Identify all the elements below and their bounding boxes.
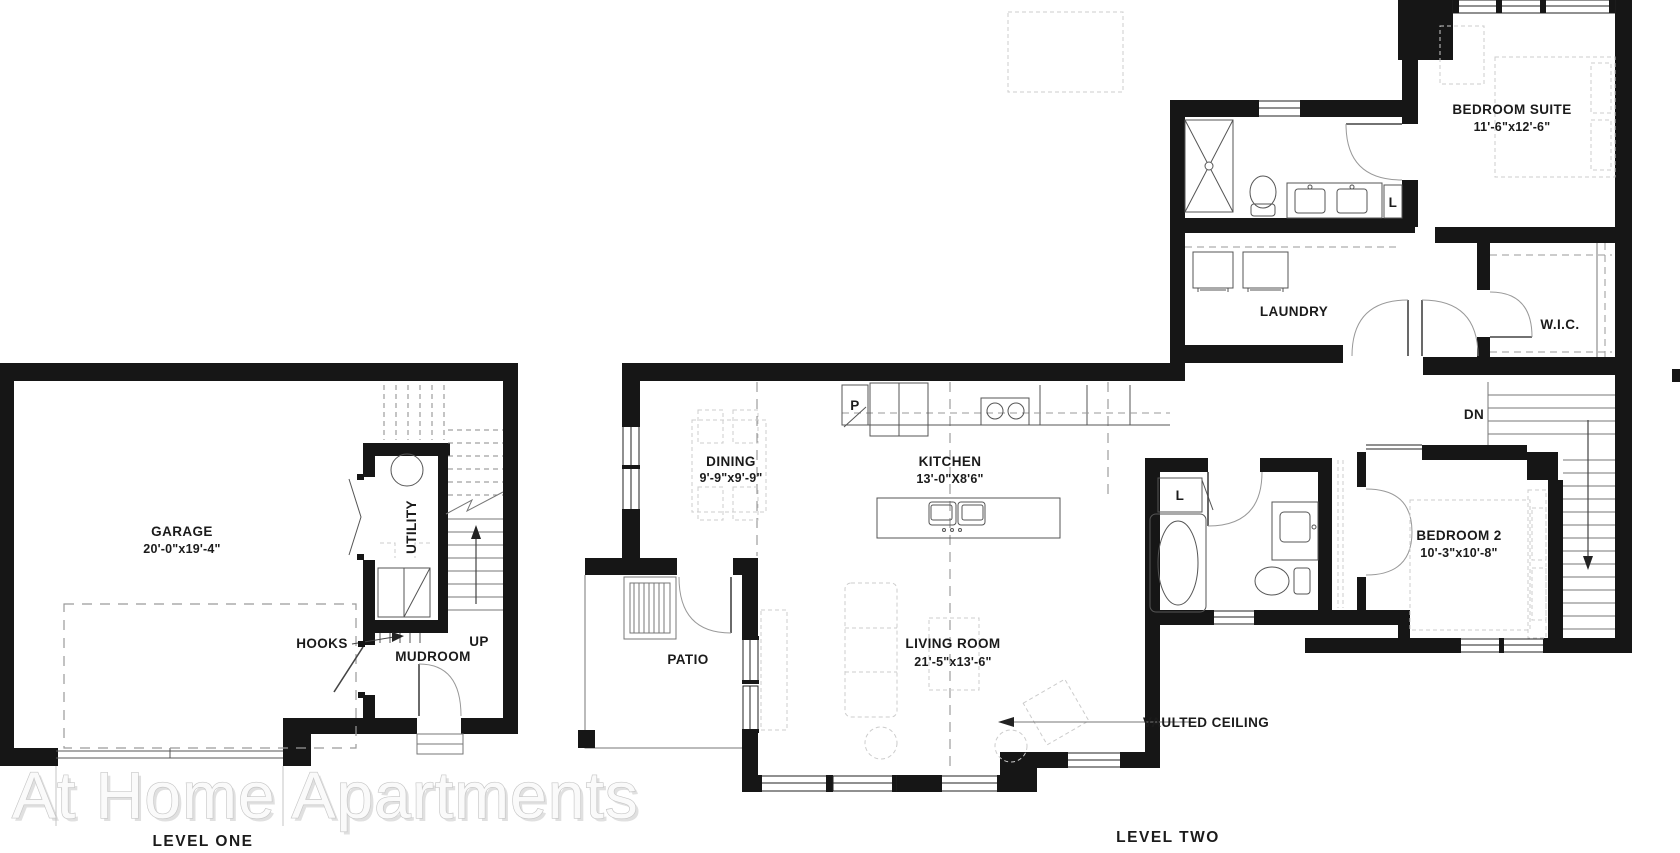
- bedroom2-double-doors: [1366, 489, 1412, 575]
- pantry-label: P: [850, 398, 859, 413]
- level-one-plan: GARAGE 20'-0"x19'-4" UTILITY HOOKS MUDRO…: [0, 363, 518, 826]
- living-south-window: [1064, 752, 1124, 768]
- shower: [1185, 120, 1233, 212]
- utility-bifold-door: [349, 479, 361, 555]
- garage-entry-door: [334, 647, 363, 692]
- patio-door: [679, 577, 731, 633]
- bedroom2-window: [1456, 638, 1548, 653]
- patio-corner-post: [578, 730, 595, 748]
- water-heater: [391, 454, 423, 486]
- level-two-title: LEVEL TWO: [1116, 829, 1220, 846]
- hall-door-left: [1352, 300, 1408, 356]
- bedroom2-label: BEDROOM 2: [1416, 528, 1501, 543]
- washer: [1193, 252, 1233, 292]
- bath2-fixtures: [1150, 460, 1343, 612]
- vanity-bath2: [1272, 502, 1318, 560]
- bedroom-suite-label: BEDROOM SUITE: [1452, 102, 1571, 117]
- bath1-window: [1255, 100, 1304, 117]
- living-room-furniture: [761, 583, 1089, 762]
- dining-dims: 9'-9"x9'-9": [699, 471, 762, 485]
- furnace: [378, 568, 430, 617]
- level-two-plan: BEDROOM SUITE 11'-6"x12'-6" LAUNDRY W.I.…: [578, 0, 1680, 792]
- level-two-walls: [585, 0, 1632, 792]
- hooks-label: HOOKS: [296, 636, 348, 651]
- level-one-labels: GARAGE 20'-0"x19'-4" UTILITY HOOKS MUDRO…: [143, 500, 488, 664]
- double-vanity: [1287, 183, 1382, 218]
- up-label: UP: [469, 634, 489, 649]
- bath2-window: [1210, 610, 1258, 625]
- cutoff-text-fragment: [1672, 369, 1680, 382]
- floor-plan-canvas: At Home Apartments At Home Apartments: [0, 0, 1680, 853]
- bedroom2-furniture: [1410, 490, 1546, 638]
- bedroom2-dims: 10'-3"x10'-8": [1420, 546, 1497, 560]
- watermark-text: At Home Apartments: [12, 758, 639, 832]
- bay-window-2: [833, 775, 896, 792]
- garage-label: GARAGE: [151, 524, 213, 539]
- level-two-labels: BEDROOM SUITE 11'-6"x12'-6" LAUNDRY W.I.…: [667, 102, 1579, 730]
- kitchen-fixtures: [842, 383, 1170, 538]
- toilet-bath1: [1250, 176, 1276, 216]
- linen-label-bath2: L: [1176, 488, 1185, 503]
- dn-label: DN: [1464, 407, 1484, 422]
- level-one-walls: [0, 363, 518, 766]
- hall-door-right: [1422, 300, 1478, 356]
- dining-label: DINING: [706, 454, 756, 469]
- hooks-arrow: [392, 632, 404, 642]
- mudroom-label: MUDROOM: [395, 649, 471, 664]
- kitchen-island: [877, 498, 1060, 538]
- ac-unit: [624, 577, 676, 639]
- utility-label: UTILITY: [404, 500, 419, 554]
- laundry-label: LAUNDRY: [1260, 304, 1328, 319]
- hall-dashed-lines: [1338, 460, 1343, 608]
- range: [981, 398, 1029, 425]
- bedroom2-cased-opening: [1366, 445, 1422, 449]
- bay-window-1: [758, 775, 830, 792]
- laundry-fixtures: [1185, 247, 1400, 292]
- dryer: [1243, 252, 1288, 292]
- living-room-dims: 21'-5"x13'-6": [914, 655, 991, 669]
- kitchen-label: KITCHEN: [919, 454, 982, 469]
- living-west-window-1: [742, 636, 759, 684]
- wic-door: [1490, 292, 1532, 337]
- bath1-fixtures: [1185, 120, 1402, 218]
- vaulted-ceiling-label: VAULTED CEILING: [1143, 715, 1269, 730]
- wic-interior: [1490, 243, 1612, 357]
- linen-label-bath1: L: [1389, 195, 1398, 210]
- kitchen-dims: 13'-0"X8'6": [916, 472, 983, 486]
- patio-label: PATIO: [667, 652, 708, 667]
- wic-label: W.I.C.: [1540, 317, 1579, 332]
- dining-window: [622, 423, 640, 513]
- vaulted-ceiling-arrow: [998, 717, 1014, 727]
- living-west-window-2: [742, 686, 759, 733]
- bay-window-3: [938, 775, 1001, 792]
- toilet-bath2: [1255, 567, 1310, 595]
- floor-plan-page: At Home Apartments At Home Apartments: [0, 0, 1680, 853]
- watermark: At Home Apartments At Home Apartments: [12, 758, 642, 835]
- ensuite-door: [1346, 124, 1402, 180]
- garage-dims: 20'-0"x19'-4": [143, 542, 220, 556]
- level-one-title: LEVEL ONE: [152, 833, 253, 850]
- bedroom-suite-dims: 11'-6"x12'-6": [1474, 120, 1551, 134]
- roof-dashed-outline: [1008, 12, 1123, 92]
- down-arrow: [1583, 556, 1593, 570]
- patio-area: [578, 575, 742, 748]
- entry-door-swing: [419, 664, 461, 716]
- refrigerator: [870, 383, 928, 436]
- bedroom-suite-window-band: [1453, 0, 1615, 13]
- kitchen-counter: [842, 385, 1170, 425]
- bath2-door: [1208, 472, 1262, 526]
- living-room-label: LIVING ROOM: [905, 636, 1000, 651]
- windows: [622, 0, 1615, 792]
